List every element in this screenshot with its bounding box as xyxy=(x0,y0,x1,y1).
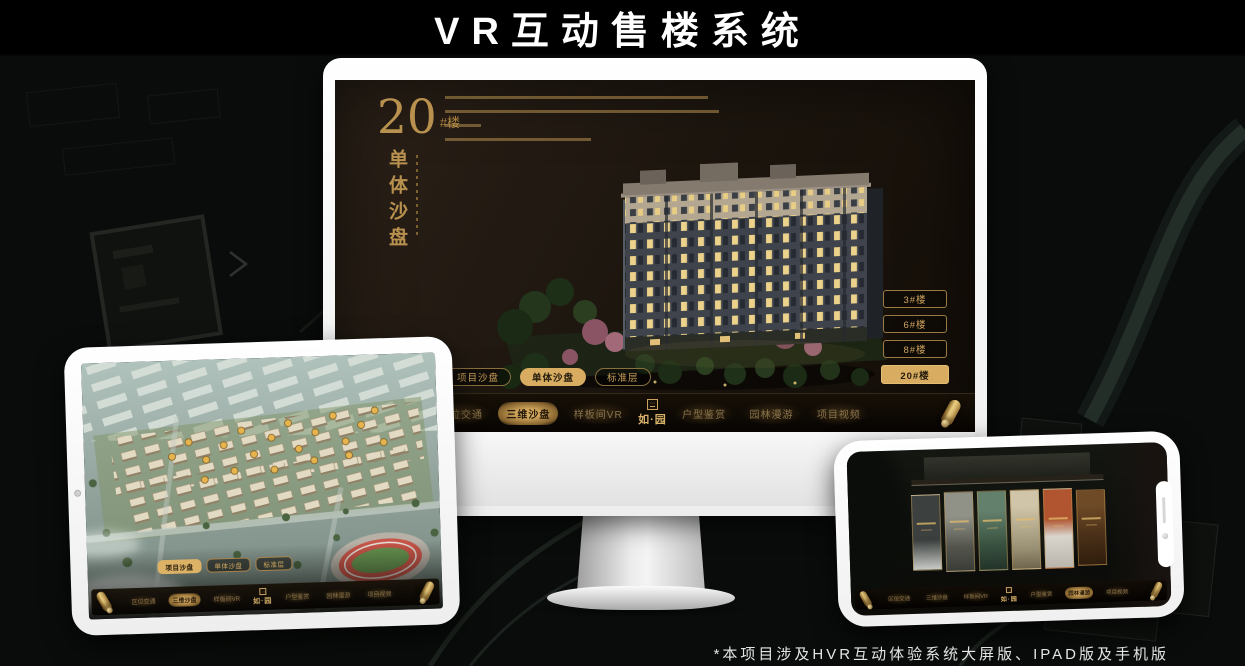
nav-item-3d-sandtable[interactable]: 三维沙盘 xyxy=(923,591,951,604)
monitor-stand-base xyxy=(547,586,735,610)
floor-buttons: 3#楼 6#楼 8#楼 20#楼 xyxy=(881,290,949,384)
nav-item-location[interactable]: 区位交通 xyxy=(127,594,159,608)
nav-item-location[interactable]: 区位交通 xyxy=(885,592,913,605)
nav-item-showroom-vr[interactable]: 样板间VR xyxy=(566,402,631,425)
brand-seal-icon xyxy=(259,588,266,595)
phone-screen: 区位交通 三维沙盘 样板间VR 如·园 户型鉴赏 园林漫游 项目视频 xyxy=(847,442,1172,616)
tab-single-sandtable[interactable]: 单体沙盘 xyxy=(520,368,586,386)
nav-item-garden-roam[interactable]: 园林漫游 xyxy=(322,588,354,602)
scroll-menu-icon[interactable] xyxy=(939,398,962,427)
tablet-tab-single-sandtable[interactable]: 单体沙盘 xyxy=(206,557,250,572)
footnote-text: *本项目涉及HVR互动体验系统大屏版、IPAD版及手机版 xyxy=(714,646,1169,663)
phone-notch xyxy=(1156,481,1175,567)
phone-speaker-icon xyxy=(1162,497,1166,523)
brand-seal-icon xyxy=(647,399,658,410)
title-bar: VR互动售楼系统 xyxy=(0,0,1245,56)
brand-seal-icon xyxy=(1006,587,1012,593)
gallery-card-building[interactable] xyxy=(1010,489,1041,570)
gallery-card-kitchen[interactable] xyxy=(944,491,975,572)
brand-logo[interactable]: 如·园 xyxy=(1000,587,1017,604)
gallery-card-autumn[interactable] xyxy=(1043,488,1074,569)
nav-item-showroom-vr[interactable]: 样板间VR xyxy=(209,591,244,605)
building-structure xyxy=(621,156,883,351)
scene-gallery xyxy=(911,489,1107,573)
tab-project-sandtable[interactable]: 项目沙盘 xyxy=(445,368,511,386)
phone-device: 区位交通 三维沙盘 样板间VR 如·园 户型鉴赏 园林漫游 项目视频 xyxy=(833,431,1185,628)
view-tabs: 项目沙盘 单体沙盘 标准层 xyxy=(445,368,651,386)
scroll-menu-icon[interactable] xyxy=(1150,581,1164,599)
nav-item-project-video[interactable]: 项目视频 xyxy=(1103,585,1131,598)
tablet-tab-standard-floor[interactable]: 标准层 xyxy=(255,556,292,571)
nav-item-project-video[interactable]: 项目视频 xyxy=(363,586,395,600)
nav-item-unit-plans[interactable]: 户型鉴赏 xyxy=(281,589,313,603)
floor-button-6[interactable]: 6#楼 xyxy=(883,315,947,333)
scroll-menu-icon[interactable] xyxy=(95,590,113,613)
building-model xyxy=(475,142,905,394)
floor-button-20[interactable]: 20#楼 xyxy=(881,365,949,384)
gallery-card-garden[interactable] xyxy=(977,490,1008,571)
floor-button-3[interactable]: 3#楼 xyxy=(883,290,947,308)
scroll-menu-icon[interactable] xyxy=(858,590,873,608)
tablet-camera-icon xyxy=(74,490,81,497)
tablet-tab-project-sandtable[interactable]: 项目沙盘 xyxy=(157,559,201,574)
subtitle-english-caption xyxy=(416,155,418,239)
stage: VR互动售楼系统 20#楼 单体沙盘 xyxy=(0,0,1245,666)
monitor-stand-neck xyxy=(577,510,705,592)
nav-item-3d-sandtable[interactable]: 三维沙盘 xyxy=(168,592,200,606)
nav-item-unit-plans[interactable]: 户型鉴赏 xyxy=(1027,588,1055,601)
nav-item-garden-roam[interactable]: 园林漫游 xyxy=(1065,586,1093,599)
gallery-card-interior[interactable] xyxy=(911,494,942,571)
nav-item-showroom-vr[interactable]: 样板间VR xyxy=(961,590,992,603)
block-subtitle: 单体沙盘 xyxy=(383,149,410,253)
scroll-menu-icon[interactable] xyxy=(418,580,435,603)
tablet-screen: 项目沙盘 单体沙盘 标准层 区位交通 三维沙盘 样板间VR 如·园 户型鉴赏 园… xyxy=(81,353,443,620)
footnote: *本项目涉及HVR互动体验系统大屏版、IPAD版及手机版 xyxy=(714,643,1169,664)
brand-logo[interactable]: 如·园 xyxy=(253,588,273,607)
nav-item-unit-plans[interactable]: 户型鉴赏 xyxy=(674,402,734,425)
gallery-card-study[interactable] xyxy=(1076,489,1107,566)
brand-logo[interactable]: 如·园 xyxy=(638,399,667,427)
tablet-device: 项目沙盘 单体沙盘 标准层 区位交通 三维沙盘 样板间VR 如·园 户型鉴赏 园… xyxy=(64,336,461,636)
nav-item-garden-roam[interactable]: 园林漫游 xyxy=(742,402,802,425)
page-title: VR互动售楼系统 xyxy=(434,0,811,55)
phone-camera-icon xyxy=(1162,533,1168,539)
tab-standard-floor[interactable]: 标准层 xyxy=(595,368,651,386)
block-number: 20 xyxy=(377,90,437,145)
nav-item-3d-sandtable[interactable]: 三维沙盘 xyxy=(498,402,558,425)
picture-frame xyxy=(92,217,221,351)
floor-button-8[interactable]: 8#楼 xyxy=(883,340,947,358)
nav-item-project-video[interactable]: 项目视频 xyxy=(809,402,869,425)
